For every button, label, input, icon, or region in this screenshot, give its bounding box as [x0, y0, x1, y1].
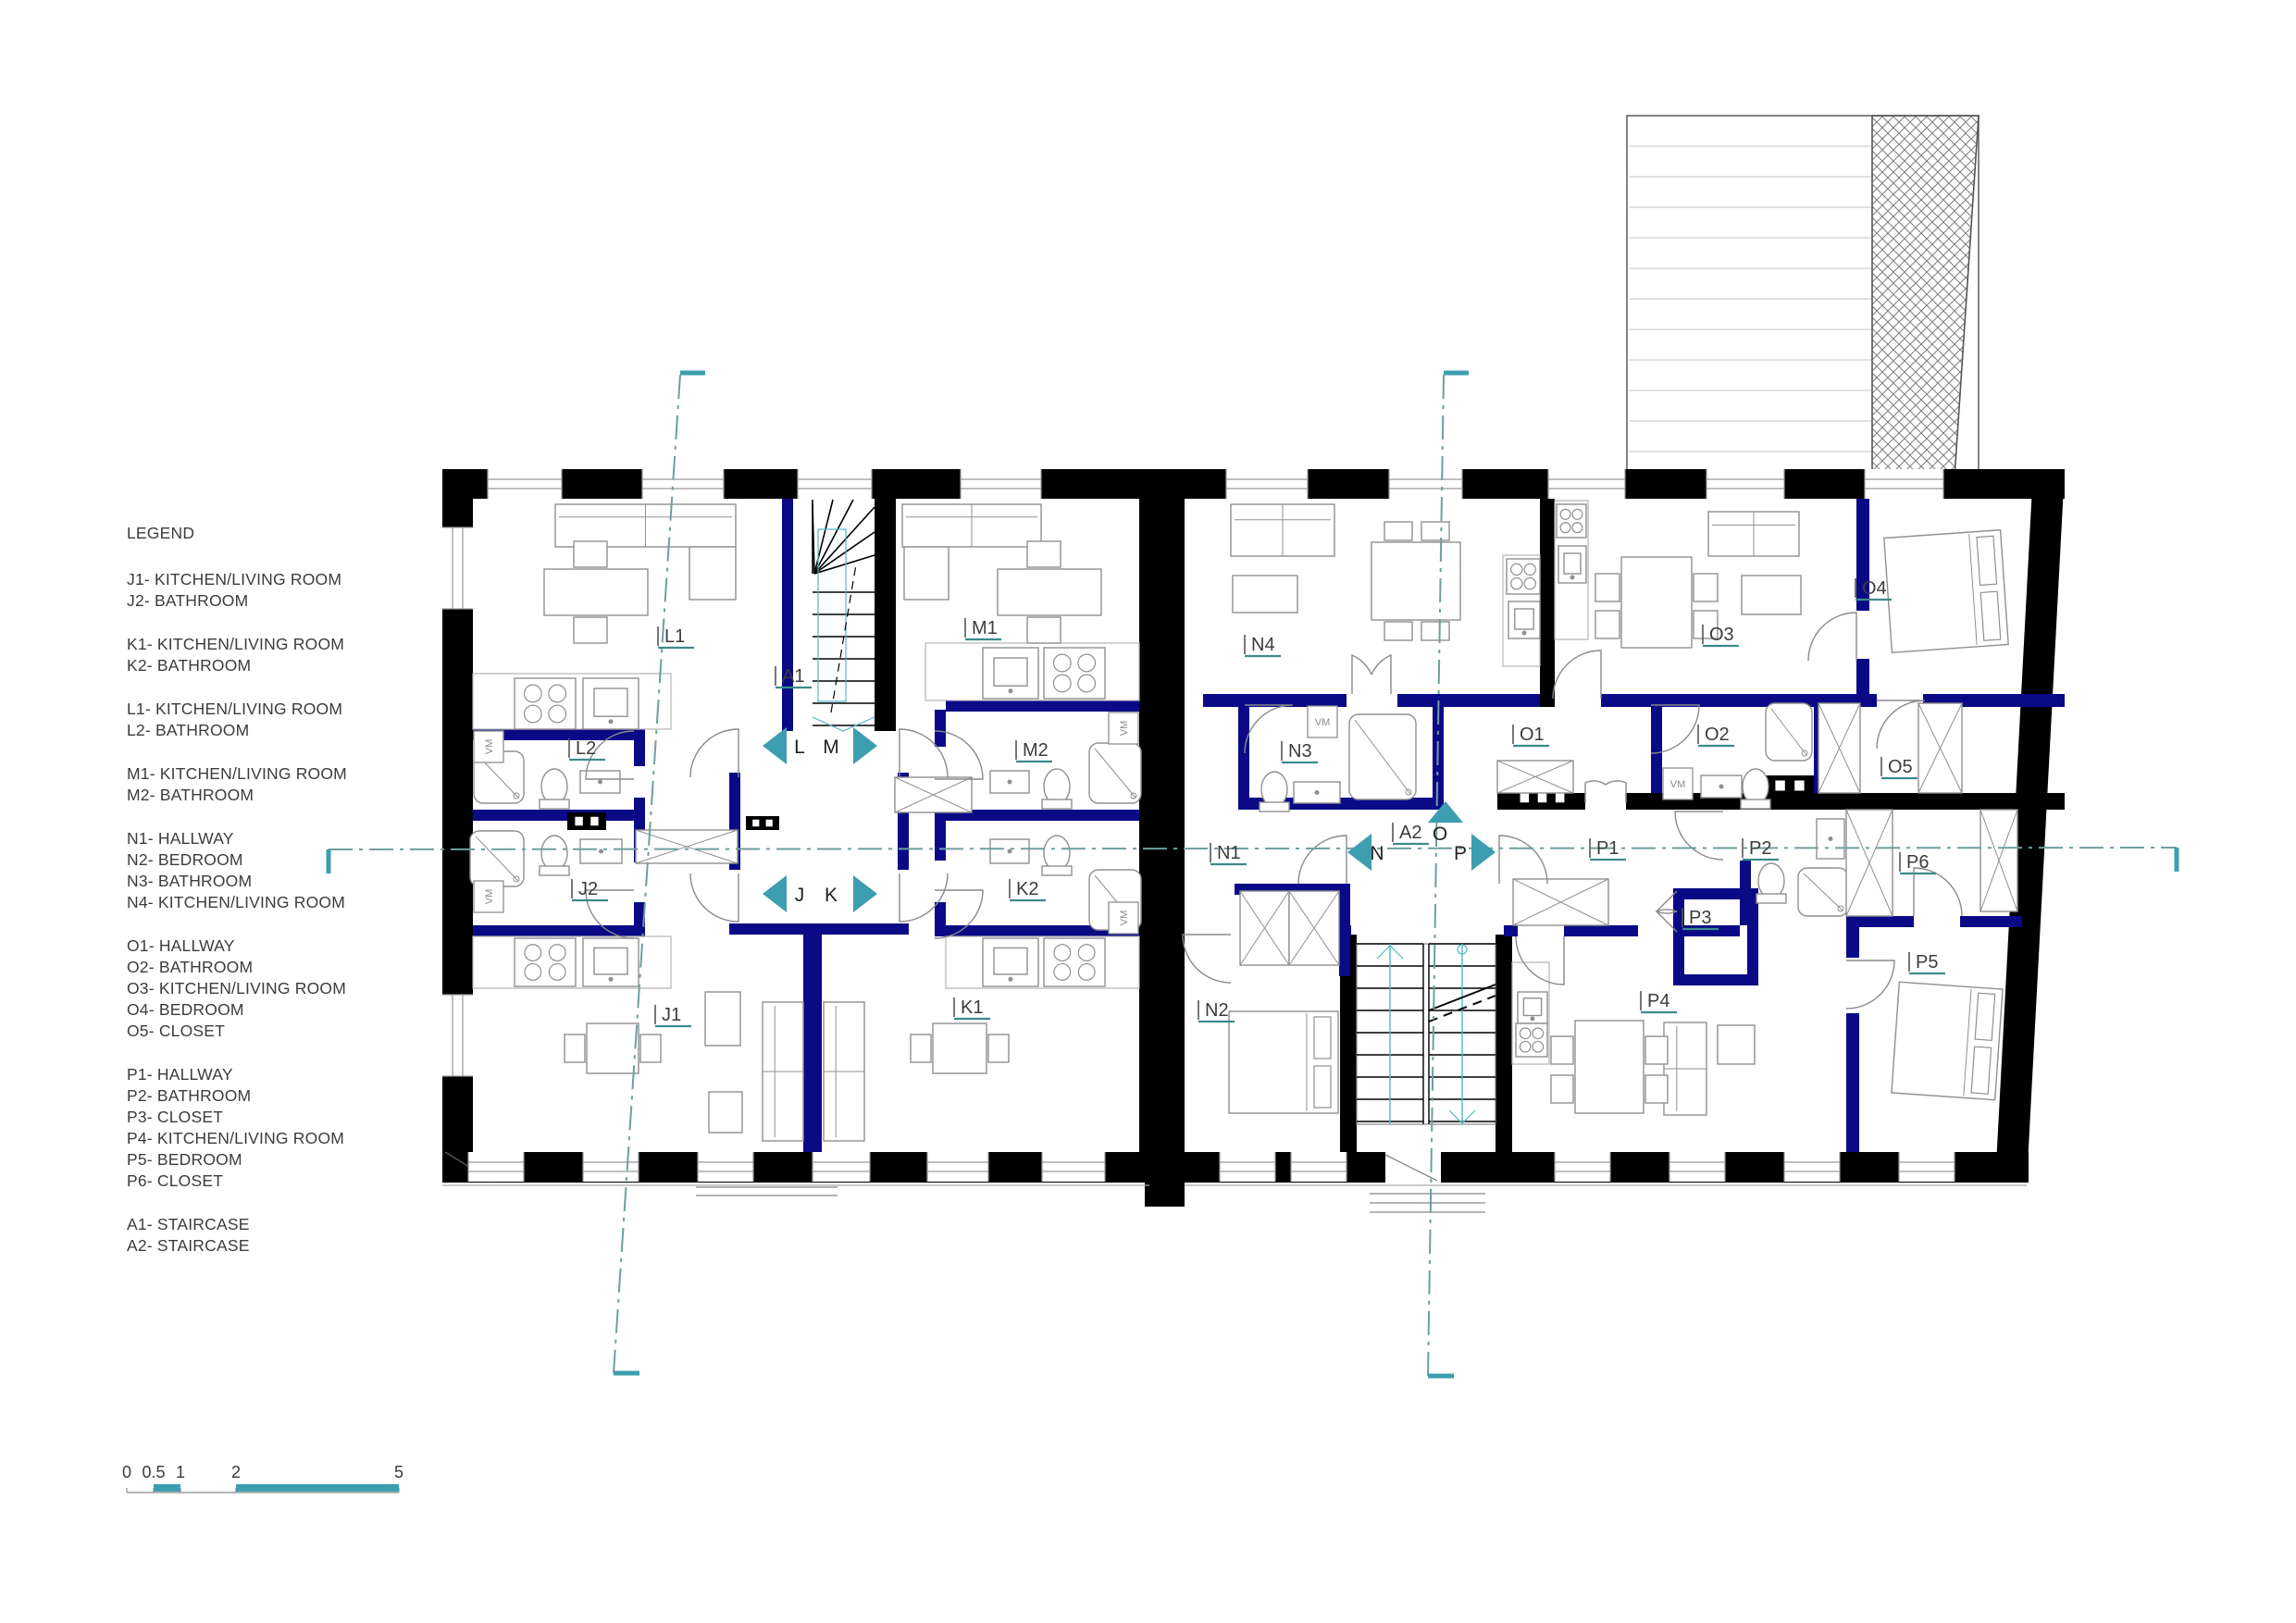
chair	[1421, 622, 1449, 640]
door-arc	[1499, 836, 1547, 884]
sink	[990, 771, 1029, 793]
legend-item: N1- HALLWAY	[127, 828, 460, 849]
stove	[515, 938, 576, 986]
stove	[1557, 504, 1586, 538]
legend-group: A1- STAIRCASEA2- STAIRCASE	[127, 1214, 460, 1257]
page-canvas: LEGEND J1- KITCHEN/LIVING ROOMJ2- BATHRO…	[0, 0, 2296, 1623]
legend-item: N3- BATHROOM	[127, 871, 460, 892]
kitchen-sink	[583, 938, 639, 986]
table	[933, 1023, 987, 1073]
legend-item: O1- HALLWAY	[127, 935, 460, 957]
washing-machine-label: VM	[484, 739, 495, 755]
door-arc	[1846, 960, 1894, 1009]
room-label: N3	[1288, 741, 1312, 762]
chair	[1551, 1036, 1573, 1064]
wardrobe	[1240, 891, 1289, 965]
washing-machine-label: VM	[1119, 721, 1130, 737]
wardrobe	[1818, 703, 1860, 793]
door-arc	[1877, 700, 1925, 749]
kitchen-sink	[583, 678, 639, 729]
chair	[1595, 611, 1620, 638]
stove	[1044, 938, 1105, 986]
room-label: P4	[1647, 991, 1669, 1011]
door-arc	[1298, 836, 1347, 884]
chair	[1384, 522, 1412, 540]
room-label: K2	[1016, 879, 1038, 899]
legend-item: N4- KITCHEN/LIVING ROOM	[127, 892, 460, 913]
legend-item: O5- CLOSET	[127, 1021, 460, 1042]
room-label: O3	[1709, 625, 1734, 645]
legend-group: P1- HALLWAYP2- BATHROOMP3- CLOSETP4- KIT…	[127, 1064, 460, 1192]
room-label: P3	[1689, 908, 1711, 928]
stove	[1516, 1023, 1547, 1057]
door-arc	[1553, 650, 1601, 699]
washing-machine-label: VM	[484, 889, 495, 905]
kitchen-sink	[983, 938, 1038, 986]
washing-machine-label: VM	[1315, 717, 1331, 728]
door-arc	[690, 729, 738, 777]
door-arc	[1352, 655, 1371, 694]
legend-item: L2- BATHROOM	[127, 720, 460, 741]
toilet	[1260, 772, 1289, 811]
room-label: M2	[1023, 740, 1049, 761]
door-arrow-label: P	[1454, 843, 1467, 864]
room-label: P1	[1596, 838, 1619, 859]
windows	[442, 469, 1955, 1182]
wardrobe	[1918, 703, 1962, 793]
direction-arrow-icon	[763, 875, 787, 912]
door-arc	[1914, 868, 1962, 916]
room-label: L2	[576, 738, 596, 759]
room-label: P5	[1916, 952, 1938, 973]
legend-item: P1- HALLWAY	[127, 1064, 460, 1085]
wardrobe	[1497, 761, 1573, 793]
room-label: A1	[782, 666, 804, 687]
legend-group: K1- KITCHEN/LIVING ROOMK2- BATHROOM	[127, 634, 460, 676]
shower	[1089, 743, 1141, 803]
door-arrow-label: J	[795, 885, 805, 906]
legend-group: N1- HALLWAYN2- BEDROOMN3- BATHROOMN4- KI…	[127, 828, 460, 913]
sofa	[902, 504, 1041, 547]
toilet	[540, 836, 569, 875]
legend-item: P6- CLOSET	[127, 1171, 460, 1192]
washing-machine-label: VM	[1670, 779, 1686, 790]
sofa	[1708, 512, 1799, 556]
scale-label: 2	[231, 1463, 241, 1481]
sink	[1701, 775, 1742, 798]
chair	[1595, 574, 1620, 601]
chair	[1645, 1075, 1668, 1103]
room-label: N2	[1205, 1000, 1229, 1021]
door-arc	[690, 873, 738, 922]
chair	[574, 617, 607, 643]
legend-group: M1- KITCHEN/LIVING ROOMM2- BATHROOM	[127, 763, 460, 806]
kitchen-sink	[1518, 992, 1547, 1023]
legend-item: M1- KITCHEN/LIVING ROOM	[127, 763, 460, 785]
room-label: L1	[664, 626, 685, 647]
bed	[1892, 982, 2003, 1100]
sink	[1817, 819, 1844, 859]
table	[1371, 542, 1460, 620]
table	[1575, 1021, 1644, 1113]
room-label: J1	[662, 1005, 681, 1025]
scale-label: 1	[176, 1463, 185, 1481]
legend: LEGEND J1- KITCHEN/LIVING ROOMJ2- BATHRO…	[127, 524, 460, 1279]
sofa	[1664, 1022, 1706, 1115]
bed	[1884, 530, 2008, 652]
legend-item: M2- BATHROOM	[127, 785, 460, 806]
door-arrow-label: L	[794, 737, 805, 758]
legend-item: P4- KITCHEN/LIVING ROOM	[127, 1128, 460, 1149]
legend-item: P5- BEDROOM	[127, 1149, 460, 1171]
legend-title: LEGEND	[127, 524, 460, 543]
scale-label: 0.5	[142, 1463, 165, 1481]
shower	[1798, 868, 1848, 916]
sofa	[555, 504, 736, 547]
chair	[1384, 622, 1412, 640]
scale-label: 0	[122, 1463, 131, 1481]
direction-arrow-icon	[763, 727, 787, 764]
kitchen-sink	[1558, 546, 1586, 583]
legend-item: O3- KITCHEN/LIVING ROOM	[127, 978, 460, 999]
room-label: A2	[1399, 823, 1421, 843]
room-label: K1	[961, 997, 983, 1018]
direction-arrow-icon	[1347, 834, 1371, 871]
stove	[1507, 559, 1540, 594]
toilet	[1042, 769, 1072, 809]
door-arrow-label: M	[823, 737, 839, 758]
legend-item: O4- BEDROOM	[127, 999, 460, 1021]
direction-arrow-icon	[1471, 834, 1496, 871]
sofa	[1231, 504, 1334, 556]
legend-item: J1- KITCHEN/LIVING ROOM	[127, 569, 460, 590]
direction-arrow-icon	[853, 727, 877, 764]
toilet	[1741, 769, 1770, 809]
legend-item: A1- STAIRCASE	[127, 1214, 460, 1235]
door-arc	[1606, 781, 1626, 803]
room-label: P2	[1749, 838, 1771, 859]
door-arc	[1183, 935, 1231, 983]
table	[998, 569, 1101, 615]
chair	[911, 1035, 931, 1062]
legend-item: P2- BATHROOM	[127, 1085, 460, 1107]
wardrobe	[1846, 810, 1893, 916]
legend-item: K2- BATHROOM	[127, 655, 460, 676]
scale-bar: 00.5125	[122, 1463, 403, 1493]
legend-item: P3- CLOSET	[127, 1107, 460, 1128]
legend-item: J2- BATHROOM	[127, 590, 460, 612]
kitchen-sink	[983, 648, 1038, 699]
shower	[470, 831, 524, 886]
room-label: N1	[1217, 843, 1241, 863]
door-arrow-label: O	[1433, 824, 1447, 845]
shower	[1766, 703, 1812, 761]
sofa	[824, 1002, 864, 1141]
stove	[515, 678, 576, 729]
terrace	[1627, 116, 1979, 477]
bed	[1229, 1011, 1338, 1113]
legend-item: K1- KITCHEN/LIVING ROOM	[127, 634, 460, 655]
sink	[580, 839, 622, 863]
sofa	[763, 1002, 803, 1141]
wardrobe	[1980, 810, 2017, 911]
chair	[1694, 574, 1718, 601]
furniture	[470, 501, 2017, 1141]
wardrobe	[895, 777, 972, 812]
stove	[1044, 648, 1105, 699]
door-arc	[1808, 613, 1856, 661]
legend-item: L1- KITCHEN/LIVING ROOM	[127, 699, 460, 720]
sink	[1294, 782, 1340, 803]
room-label: O4	[1862, 578, 1887, 599]
wardrobe	[1513, 879, 1608, 925]
legend-item: A2- STAIRCASE	[127, 1235, 460, 1257]
toilet	[1042, 836, 1072, 875]
room-label: M1	[972, 618, 998, 638]
legend-group: J1- KITCHEN/LIVING ROOMJ2- BATHROOM	[127, 569, 460, 612]
shower	[1349, 714, 1416, 799]
chair	[988, 1035, 1009, 1062]
table	[544, 569, 648, 615]
legend-item: N2- BEDROOM	[127, 849, 460, 871]
room-label: N4	[1251, 635, 1275, 655]
chair	[565, 1035, 585, 1062]
chair	[1027, 541, 1061, 567]
room-label: J2	[578, 879, 598, 899]
wardrobe	[636, 830, 738, 863]
sink	[990, 839, 1029, 863]
direction-arrow-icon	[853, 875, 877, 912]
room-label: O2	[1705, 725, 1730, 745]
legend-item: O2- BATHROOM	[127, 957, 460, 978]
chair	[574, 541, 607, 567]
room-label: P6	[1906, 852, 1929, 873]
door-arrow-label: K	[825, 885, 838, 906]
kitchen-sink	[1508, 601, 1540, 638]
door-arrow-label: N	[1370, 843, 1384, 864]
door-arc	[1675, 811, 1723, 860]
door-arc	[1371, 655, 1391, 694]
chair	[1551, 1075, 1573, 1103]
door-arc	[1585, 781, 1606, 803]
door-arc	[1245, 705, 1293, 753]
toilet	[1756, 863, 1786, 903]
legend-group: L1- KITCHEN/LIVING ROOML2- BATHROOM	[127, 699, 460, 741]
chair	[640, 1035, 661, 1062]
legend-group: O1- HALLWAYO2- BATHROOMO3- KITCHEN/LIVIN…	[127, 935, 460, 1042]
table	[1621, 557, 1692, 648]
chair	[1027, 617, 1061, 643]
room-label: O1	[1520, 725, 1545, 745]
chair	[1645, 1036, 1668, 1064]
wardrobe	[1289, 891, 1339, 965]
room-label: O5	[1888, 757, 1913, 777]
table	[587, 1023, 639, 1073]
washing-machine-label: VM	[1119, 911, 1130, 926]
chair	[1421, 522, 1449, 540]
scale-label: 5	[394, 1463, 403, 1481]
toilet	[540, 769, 569, 809]
